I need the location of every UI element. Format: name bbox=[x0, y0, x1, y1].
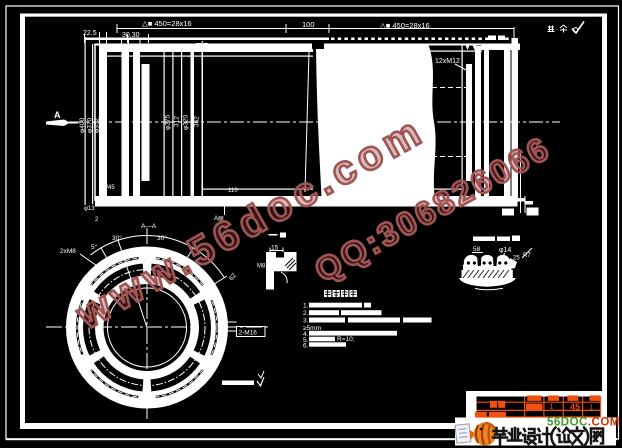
svg-text:30°: 30° bbox=[112, 234, 122, 242]
svg-text:φ320: φ320 bbox=[183, 115, 190, 130]
svg-text:M8: M8 bbox=[257, 264, 266, 270]
svg-text:φ352: φ352 bbox=[94, 118, 101, 133]
svg-text:362: 362 bbox=[194, 116, 201, 127]
svg-text:312: 312 bbox=[174, 116, 181, 127]
svg-text:2-M16: 2-M16 bbox=[239, 330, 258, 337]
svg-text:φ275: φ275 bbox=[165, 115, 172, 130]
svg-text:5/45: 5/45 bbox=[103, 185, 115, 191]
svg-text:2xМ8: 2xМ8 bbox=[60, 248, 76, 255]
svg-text:R=10;: R=10; bbox=[337, 336, 355, 343]
svg-text:2.: 2. bbox=[303, 310, 309, 317]
svg-text:φ13: φ13 bbox=[84, 206, 95, 212]
svg-text:φ14: φ14 bbox=[499, 247, 511, 254]
svg-text:△■ 450=28x16: △■ 450=28x16 bbox=[142, 19, 192, 28]
svg-text:45: 45 bbox=[570, 402, 580, 412]
svg-text:1.: 1. bbox=[303, 303, 309, 310]
svg-text:12xM12: 12xM12 bbox=[435, 58, 460, 65]
svg-text:3.: 3. bbox=[303, 318, 309, 325]
svg-text:A—A: A—A bbox=[141, 223, 157, 230]
svg-text:110: 110 bbox=[228, 188, 238, 194]
svg-text:1: 1 bbox=[590, 405, 594, 412]
svg-text:A: A bbox=[54, 110, 61, 120]
svg-text:100: 100 bbox=[302, 20, 315, 29]
svg-text:6.: 6. bbox=[303, 343, 309, 350]
svg-text:22.5: 22.5 bbox=[83, 30, 97, 37]
svg-text:30,30: 30,30 bbox=[122, 32, 140, 39]
svg-text:△■ 450=28x16: △■ 450=28x16 bbox=[380, 21, 430, 30]
svg-text:5°: 5° bbox=[91, 243, 98, 251]
svg-text:φ400: φ400 bbox=[79, 118, 86, 133]
svg-text:φ370: φ370 bbox=[87, 118, 94, 133]
svg-text:58: 58 bbox=[473, 246, 481, 253]
svg-text:1: 1 bbox=[550, 404, 554, 411]
svg-text:30°: 30° bbox=[157, 234, 167, 242]
